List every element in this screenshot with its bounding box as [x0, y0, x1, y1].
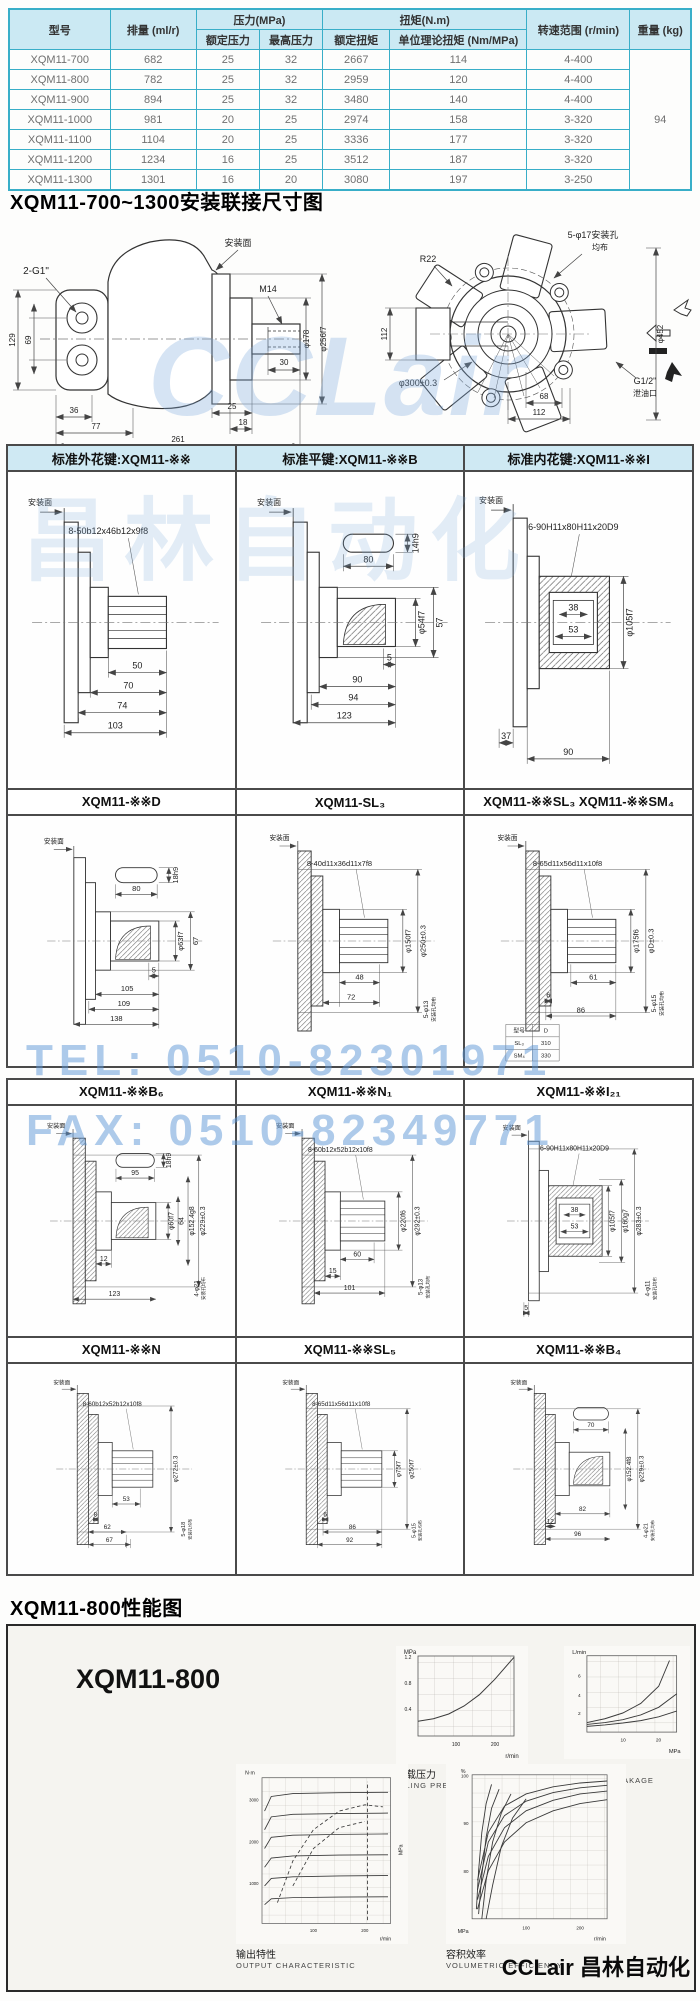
header-variant-n: XQM11-※※N [7, 1337, 236, 1363]
cell-speed-range: 4-400 [527, 90, 630, 110]
header-variant-sl3-sm4: XQM11-※※SL₃ XQM11-※※SM₄ [464, 789, 693, 815]
cell-unit-torque: 114 [390, 50, 527, 70]
cell-model: XQM11-1200 [9, 150, 110, 170]
cell-speed-range: 4-400 [527, 50, 630, 70]
svg-text:62: 62 [104, 1524, 112, 1531]
svg-text:53: 53 [569, 624, 579, 634]
chart-caption-cn: 容积效率 [446, 1946, 646, 1961]
svg-text:φ250±0.3: φ250±0.3 [418, 925, 427, 957]
svg-text:安装面: 安装面 [503, 1124, 521, 1132]
cell-displacement: 894 [110, 90, 196, 110]
svg-text:φ256f7: φ256f7 [319, 326, 328, 352]
drawing-cell-variant-sl3: 4872φ150f7φ250±0.3安装面8-40d11x36d11x7f85-… [236, 815, 465, 1067]
svg-text:112: 112 [533, 408, 546, 417]
chart-caption-en: VOLUMETRIC EFFICIENCY [446, 1961, 646, 1970]
svg-text:310: 310 [541, 1041, 551, 1047]
col-header-rated-pressure: 额定压力 [196, 30, 259, 50]
cell-rated-torque: 3512 [323, 150, 390, 170]
cell-max-pressure: 32 [259, 70, 322, 90]
col-header-rated-torque: 额定扭矩 [323, 30, 390, 50]
svg-text:82: 82 [579, 1506, 587, 1513]
table-row: 5386267φ272±0.3安装面8-60b12x52b12x10f85-φ1… [7, 1363, 693, 1575]
table-row: 8018h95105109138φ63f767安装面 4872φ150f7φ25… [7, 815, 693, 1067]
table-row: XQM11-1200 1234 16 25 3512 187 3-320 [9, 150, 691, 170]
svg-text:12: 12 [100, 1256, 108, 1263]
svg-text:8-50b12x46b12x9f8: 8-50b12x46b12x9f8 [68, 526, 148, 536]
table-header-row: 型号 排量 (ml/r) 压力(MPa) 扭矩(N.m) 转速范围 (r/min… [9, 9, 691, 30]
performance-section-title: XQM11-800性能图 [10, 1592, 183, 1621]
spec-table: 型号 排量 (ml/r) 压力(MPa) 扭矩(N.m) 转速范围 (r/min… [8, 8, 692, 191]
svg-text:r/min: r/min [380, 1937, 392, 1943]
svg-text:12: 12 [547, 1519, 555, 1526]
drawing-cell-inner-spline: 3853φ105f73790安装面6-90H11x80H11x20D9 [464, 471, 693, 789]
header-variant-b4: XQM11-※※B₄ [464, 1337, 693, 1363]
svg-text:18: 18 [239, 418, 248, 427]
svg-text:4: 4 [578, 1693, 581, 1699]
svg-text:φ175f6: φ175f6 [632, 929, 641, 953]
header-variant-sl3: XQM11-SL₃ [236, 789, 465, 815]
svg-text:129: 129 [8, 333, 17, 347]
cell-rated-pressure: 20 [196, 130, 259, 150]
svg-text:5: 5 [387, 653, 392, 663]
svg-text:4-φ21: 4-φ21 [644, 1523, 650, 1538]
svg-text:安装面: 安装面 [257, 497, 281, 507]
svg-text:6: 6 [547, 991, 551, 1000]
svg-text:112: 112 [380, 327, 389, 340]
header-outer-spline: 标准外花键:XQM11-※※ [7, 445, 236, 471]
svg-text:φ150f7: φ150f7 [403, 929, 412, 953]
svg-text:φ452: φ452 [656, 324, 665, 343]
svg-text:6-90H11x80H11x20D9: 6-90H11x80H11x20D9 [528, 522, 618, 532]
svg-text:64: 64 [178, 1217, 185, 1225]
cell-speed-range: 4-400 [527, 70, 630, 90]
svg-text:φ272±0.3: φ272±0.3 [172, 1455, 179, 1482]
cell-rated-pressure: 25 [196, 50, 259, 70]
volumetric-efficiency-plot: %r/minMPa1009080100200 [446, 1764, 626, 1944]
svg-text:36: 36 [70, 406, 79, 415]
svg-text:安装孔均布: 安装孔均布 [186, 1519, 193, 1540]
svg-text:8-65d11x56d11x10f8: 8-65d11x56d11x10f8 [533, 859, 602, 868]
cell-model: XQM11-1100 [9, 130, 110, 150]
svg-text:123: 123 [109, 1291, 121, 1298]
cell-model: XQM11-1000 [9, 110, 110, 130]
svg-text:φ152.4f8: φ152.4f8 [626, 1456, 633, 1482]
svg-text:80: 80 [363, 554, 373, 564]
svg-text:92: 92 [346, 1537, 354, 1544]
svg-text:φ105f7: φ105f7 [625, 608, 635, 636]
col-header-torque-group: 扭矩(N.m) [323, 9, 527, 30]
svg-text:37: 37 [501, 731, 511, 741]
svg-text:20: 20 [656, 1738, 662, 1744]
svg-text:123: 123 [336, 711, 351, 721]
cell-unit-torque: 177 [390, 130, 527, 150]
svg-text:M14: M14 [259, 284, 277, 294]
header-inner-spline: 标准内花键:XQM11-※※I [464, 445, 693, 471]
svg-text:100: 100 [310, 1928, 318, 1933]
svg-text:φ54f7: φ54f7 [416, 611, 426, 634]
svg-text:18h9: 18h9 [166, 1153, 173, 1168]
svg-text:200: 200 [491, 1742, 500, 1748]
svg-text:3000: 3000 [249, 1798, 259, 1803]
svg-text:96: 96 [574, 1531, 582, 1538]
svg-text:10: 10 [621, 1738, 627, 1744]
svg-text:5-φ13: 5-φ13 [417, 1278, 424, 1295]
cell-rated-torque: 2667 [323, 50, 390, 70]
table-row: XQM11-※※N XQM11-※※SL₅ XQM11-※※B₄ [7, 1337, 693, 1363]
cell-speed-range: 3-320 [527, 130, 630, 150]
svg-text:6-90H11x80H11x20D9: 6-90H11x80H11x20D9 [540, 1145, 609, 1152]
cell-rated-torque: 3336 [323, 130, 390, 150]
table-row: XQM11-900 894 25 32 3480 140 4-400 [9, 90, 691, 110]
svg-text:72: 72 [347, 992, 355, 1001]
svg-text:安装面: 安装面 [53, 1378, 70, 1386]
cell-unit-torque: 158 [390, 110, 527, 130]
table-row: 9518h912123φ60f764φ152.4g8φ229±0.3安装面4-φ… [7, 1105, 693, 1337]
svg-text:100: 100 [452, 1742, 461, 1748]
drawing-cell-variant-b6: 9518h912123φ60f764φ152.4g8φ229±0.3安装面4-φ… [7, 1105, 236, 1337]
svg-text:48: 48 [355, 972, 363, 981]
svg-text:安装孔均布: 安装孔均布 [652, 1277, 659, 1300]
svg-text:N·m: N·m [245, 1770, 255, 1776]
shaft-drawing-variant-sl5: 68692φ75f7φ250f7安装面8-65d11x56d11x10f85-φ… [237, 1364, 464, 1574]
shaft-drawing-variant-sl3: 4872φ150f7φ250±0.3安装面8-40d11x36d11x7f85-… [237, 816, 464, 1066]
svg-text:φ220f6: φ220f6 [400, 1210, 407, 1232]
cell-max-pressure: 25 [259, 150, 322, 170]
svg-text:67: 67 [191, 937, 200, 945]
cell-rated-pressure: 20 [196, 110, 259, 130]
svg-text:5-φ15: 5-φ15 [651, 994, 658, 1012]
drawing-cell-outer-spline: 507074103安装面8-50b12x46b12x9f8 [7, 471, 236, 789]
svg-text:95: 95 [131, 1170, 139, 1177]
svg-text:安装面: 安装面 [282, 1378, 299, 1386]
cell-unit-torque: 120 [390, 70, 527, 90]
rotation-direction-arrows [647, 300, 691, 382]
volumetric-efficiency-chart: %r/minMPa1009080100200 容积效率 VOLUMETRIC E… [446, 1764, 646, 1970]
svg-text:138: 138 [110, 1014, 123, 1023]
drawing-cell-variant-b4: 70821296φ152.4f8φ229±0.3安装面4-φ21安装孔均布 [464, 1363, 693, 1575]
svg-text:86: 86 [349, 1524, 357, 1531]
table-row: 标准外花键:XQM11-※※ 标准平键:XQM11-※※B 标准内花键:XQM1… [7, 445, 693, 471]
idling-pressure-plot: MPar/min1.20.80.4100200 [396, 1646, 528, 1764]
cell-model: XQM11-800 [9, 70, 110, 90]
svg-text:2000: 2000 [249, 1840, 259, 1845]
svg-text:109: 109 [118, 999, 131, 1008]
svg-text:安装面: 安装面 [28, 497, 52, 507]
cell-max-pressure: 25 [259, 130, 322, 150]
svg-text:105: 105 [121, 984, 134, 993]
cell-speed-range: 3-320 [527, 150, 630, 170]
motor-side-view-drawing: 2-G1"安装面M1430φ178φ256f71296936772518261 [0, 212, 340, 452]
cell-max-pressure: 32 [259, 90, 322, 110]
svg-text:安装孔均布: 安装孔均布 [659, 991, 666, 1016]
svg-text:61: 61 [589, 972, 597, 981]
svg-text:φ283±0.3: φ283±0.3 [637, 1206, 644, 1235]
header-variant-n1: XQM11-※※N₁ [236, 1079, 465, 1105]
svg-text:330: 330 [541, 1054, 551, 1060]
cell-displacement: 682 [110, 50, 196, 70]
svg-text:68: 68 [540, 392, 549, 401]
cell-max-pressure: 32 [259, 50, 322, 70]
svg-text:φ178: φ178 [302, 329, 311, 348]
svg-text:2: 2 [578, 1711, 581, 1717]
svg-text:38: 38 [569, 602, 579, 612]
svg-text:2-G1": 2-G1" [23, 266, 49, 277]
drawing-cell-variant-n: 5386267φ272±0.3安装面8-60b12x52b12x10f85-φ1… [7, 1363, 236, 1575]
svg-text:φ105f7: φ105f7 [610, 1210, 617, 1232]
header-variant-b6: XQM11-※※B₆ [7, 1079, 236, 1105]
drawing-cell-variant-sl5: 68692φ75f7φ250f7安装面8-65d11x56d11x10f85-φ… [236, 1363, 465, 1575]
shaft-drawing-variant-b6: 9518h912123φ60f764φ152.4g8φ229±0.3安装面4-φ… [8, 1106, 235, 1336]
svg-text:100: 100 [461, 1774, 469, 1779]
svg-text:50: 50 [132, 661, 142, 671]
svg-text:φ250f7: φ250f7 [408, 1459, 415, 1479]
header-variant-sl5: XQM11-※※SL₅ [236, 1337, 465, 1363]
svg-text:77: 77 [92, 422, 101, 431]
svg-text:100: 100 [522, 1926, 530, 1931]
svg-text:53: 53 [571, 1224, 579, 1231]
svg-text:5-φ17安装孔: 5-φ17安装孔 [568, 229, 619, 240]
svg-text:25: 25 [228, 402, 237, 411]
table-row: 507074103安装面8-50b12x46b12x9f8 8014h95909… [7, 471, 693, 789]
col-header-speed-range: 转速范围 (r/min) [527, 9, 630, 50]
svg-text:G1/2": G1/2" [634, 376, 657, 386]
svg-text:80: 80 [463, 1869, 469, 1874]
col-header-weight: 重量 (kg) [630, 9, 691, 50]
svg-text:4-φ11: 4-φ11 [645, 1280, 652, 1296]
shaft-drawing-flat-key: 8014h959094123φ54f757安装面 [237, 472, 464, 788]
table-row: XQM11-※※B₆ XQM11-※※N₁ XQM11-※※I₂₁ [7, 1079, 693, 1105]
internal-leakage-plot: L/minMPa6421020 [564, 1646, 690, 1759]
svg-text:安装面: 安装面 [224, 237, 251, 248]
svg-text:90: 90 [463, 1821, 469, 1826]
cell-unit-torque: 197 [390, 170, 527, 191]
svg-text:8-65d11x56d11x10f8: 8-65d11x56d11x10f8 [312, 1401, 371, 1408]
cell-rated-pressure: 25 [196, 70, 259, 90]
table-row: XQM11-1100 1104 20 25 3336 177 3-320 [9, 130, 691, 150]
col-header-displacement: 排量 (ml/r) [110, 9, 196, 50]
svg-text:74: 74 [117, 701, 127, 711]
output-characteristic-plot: N·mr/minMPa300020001000100200 [236, 1764, 408, 1944]
shaft-drawing-variant-n: 5386267φ272±0.3安装面8-60b12x52b12x10f85-φ1… [8, 1364, 235, 1574]
svg-text:1.2: 1.2 [405, 1655, 412, 1661]
header-flat-key: 标准平键:XQM11-※※B [236, 445, 465, 471]
svg-text:30: 30 [280, 358, 289, 367]
shaft-drawing-inner-spline: 3853φ105f73790安装面6-90H11x80H11x20D9 [465, 472, 692, 788]
svg-text:安装面: 安装面 [511, 1378, 528, 1386]
header-variant-d: XQM11-※※D [7, 789, 236, 815]
svg-text:φ229±0.3: φ229±0.3 [639, 1455, 646, 1482]
svg-text:70: 70 [588, 1422, 596, 1429]
svg-text:安装面: 安装面 [44, 837, 64, 846]
shaft-drawing-variant-n1: 6015101φ220f6φ292±0.3安装面8-60b12x52b12x10… [237, 1106, 464, 1336]
cell-model: XQM11-900 [9, 90, 110, 110]
svg-text:101: 101 [343, 1285, 355, 1292]
performance-panel: XQM11-800 MPar/min1.20.80.4100200 空载压力 I… [6, 1624, 696, 1992]
installation-drawing-strip: 2-G1"安装面M1430φ178φ256f71296936772518261 [0, 212, 700, 442]
cell-displacement: 981 [110, 110, 196, 130]
cell-displacement: 782 [110, 70, 196, 90]
drawing-cell-flat-key: 8014h959094123φ54f757安装面 [236, 471, 465, 789]
cell-rated-torque: 3080 [323, 170, 390, 191]
dimension-table-1: 标准外花键:XQM11-※※ 标准平键:XQM11-※※B 标准内花键:XQM1… [6, 444, 694, 1068]
svg-text:14h9: 14h9 [410, 533, 420, 553]
col-header-max-pressure: 最高压力 [259, 30, 322, 50]
svg-text:安装面: 安装面 [276, 1122, 294, 1130]
svg-text:4-φ21: 4-φ21 [194, 1280, 201, 1297]
cell-rated-torque: 2959 [323, 70, 390, 90]
drawing-cell-variant-i21: 3853φ105f7φ160g7φ283±0.35安装面6-90H11x80H1… [464, 1105, 693, 1337]
svg-text:38: 38 [571, 1207, 579, 1214]
svg-text:L/min: L/min [572, 1650, 586, 1656]
svg-text:安装孔均布: 安装孔均布 [424, 1275, 431, 1298]
svg-text:86: 86 [577, 1006, 585, 1015]
chart-caption-en: OUTPUT CHARACTERISTIC [236, 1961, 421, 1970]
svg-text:8: 8 [94, 1512, 98, 1519]
table-row: XQM11-800 782 25 32 2959 120 4-400 [9, 70, 691, 90]
svg-text:70: 70 [123, 681, 133, 691]
col-header-pressure-group: 压力(MPa) [196, 9, 322, 30]
svg-text:8-40d11x36d11x7f8: 8-40d11x36d11x7f8 [307, 859, 372, 868]
svg-text:φD±0.3: φD±0.3 [647, 929, 656, 954]
svg-text:安装孔均布: 安装孔均布 [416, 1520, 423, 1541]
svg-text:103: 103 [108, 721, 123, 731]
cell-weight: 94 [630, 50, 691, 191]
svg-text:安装面: 安装面 [47, 1122, 65, 1130]
svg-text:1000: 1000 [249, 1881, 259, 1886]
motor-front-view-drawing: 5-φ17安装孔均布R22112φ452φ300±0.368112G1/2"泄油… [330, 212, 700, 452]
shaft-drawing-variant-i21: 3853φ105f7φ160g7φ283±0.35安装面6-90H11x80H1… [465, 1106, 692, 1336]
svg-text:80: 80 [132, 884, 140, 893]
cell-model: XQM11-700 [9, 50, 110, 70]
cell-rated-torque: 3480 [323, 90, 390, 110]
svg-text:φ152.4g8: φ152.4g8 [189, 1206, 196, 1235]
table-row: XQM11-700 682 25 32 2667 114 4-400 94 [9, 50, 691, 70]
svg-text:5-φ15: 5-φ15 [411, 1523, 417, 1538]
svg-text:型号: 型号 [514, 1027, 526, 1035]
svg-text:SL₃: SL₃ [515, 1041, 525, 1047]
svg-text:69: 69 [24, 335, 33, 344]
svg-text:均布: 均布 [592, 242, 608, 252]
svg-text:90: 90 [352, 675, 362, 685]
table-row: XQM11-※※D XQM11-SL₃ XQM11-※※SL₃ XQM11-※※… [7, 789, 693, 815]
svg-text:53: 53 [123, 1496, 131, 1503]
svg-text:200: 200 [361, 1928, 369, 1933]
table-row: XQM11-1000 981 20 25 2974 158 3-320 [9, 110, 691, 130]
cell-rated-pressure: 25 [196, 90, 259, 110]
svg-text:φ75f7: φ75f7 [395, 1460, 402, 1477]
cell-displacement: 1234 [110, 150, 196, 170]
svg-text:MPa: MPa [399, 1844, 405, 1855]
shaft-drawing-variant-d: 8018h95105109138φ63f767安装面 [8, 816, 235, 1066]
svg-text:φ160g7: φ160g7 [623, 1209, 630, 1233]
svg-text:200: 200 [576, 1926, 584, 1931]
svg-text:r/min: r/min [594, 1936, 606, 1942]
svg-text:φ229±0.3: φ229±0.3 [200, 1206, 207, 1235]
svg-text:R22: R22 [420, 254, 437, 264]
header-variant-i21: XQM11-※※I₂₁ [464, 1079, 693, 1105]
svg-text:57: 57 [434, 617, 444, 627]
datasheet-page: 型号 排量 (ml/r) 压力(MPa) 扭矩(N.m) 转速范围 (r/min… [0, 0, 700, 2001]
svg-text:8-60b12x52b12x10f8: 8-60b12x52b12x10f8 [308, 1147, 373, 1154]
svg-text:安装孔均布: 安装孔均布 [200, 1277, 207, 1300]
chart-caption-cn: 输出特性 [236, 1946, 421, 1961]
svg-text:MPa: MPa [458, 1929, 469, 1935]
svg-text:5-φ13: 5-φ13 [422, 1000, 429, 1018]
performance-model-label: XQM11-800 [76, 1664, 220, 1695]
drawing-cell-variant-n1: 6015101φ220f6φ292±0.3安装面8-60b12x52b12x10… [236, 1105, 465, 1337]
svg-text:安装孔均布: 安装孔均布 [430, 997, 437, 1022]
cell-unit-torque: 140 [390, 90, 527, 110]
svg-text:φ63f7: φ63f7 [176, 931, 185, 950]
shaft-drawing-outer-spline: 507074103安装面8-50b12x46b12x9f8 [8, 472, 235, 788]
cell-speed-range: 3-250 [527, 170, 630, 191]
svg-text:18h9: 18h9 [171, 867, 180, 884]
svg-text:6: 6 [323, 1512, 327, 1519]
svg-text:r/min: r/min [505, 1754, 518, 1760]
svg-text:5-φ18: 5-φ18 [181, 1522, 187, 1537]
cell-speed-range: 3-320 [527, 110, 630, 130]
svg-text:6: 6 [578, 1674, 581, 1680]
svg-text:安装面: 安装面 [479, 495, 503, 505]
output-characteristic-chart: N·mr/minMPa300020001000100200 输出特性 OUTPU… [236, 1764, 421, 1970]
svg-text:67: 67 [106, 1537, 114, 1544]
cell-max-pressure: 25 [259, 110, 322, 130]
cell-rated-pressure: 16 [196, 150, 259, 170]
svg-text:安装面: 安装面 [269, 833, 289, 842]
svg-text:MPa: MPa [669, 1749, 682, 1755]
col-header-unit-torque: 单位理论扭矩 (Nm/MPa) [390, 30, 527, 50]
dimension-table-2: XQM11-※※B₆ XQM11-※※N₁ XQM11-※※I₂₁ 9518h9… [6, 1078, 694, 1576]
svg-text:D: D [544, 1029, 548, 1035]
svg-text:0.8: 0.8 [405, 1681, 412, 1687]
svg-text:φ60f7: φ60f7 [168, 1212, 175, 1230]
cell-displacement: 1104 [110, 130, 196, 150]
svg-text:泄油口: 泄油口 [633, 388, 657, 398]
shaft-drawing-variant-b4: 70821296φ152.4f8φ229±0.3安装面4-φ21安装孔均布 [465, 1364, 692, 1574]
svg-text:261: 261 [171, 435, 185, 444]
svg-text:60: 60 [353, 1251, 361, 1258]
drawing-cell-variant-d: 8018h95105109138φ63f767安装面 [7, 815, 236, 1067]
svg-text:5: 5 [152, 966, 156, 975]
svg-text:90: 90 [564, 747, 574, 757]
svg-text:安装孔均布: 安装孔均布 [649, 1520, 656, 1541]
svg-text:0.4: 0.4 [405, 1707, 412, 1713]
svg-text:φ292±0.3: φ292±0.3 [414, 1206, 421, 1235]
svg-text:5: 5 [525, 1305, 529, 1312]
svg-text:SM₄: SM₄ [514, 1054, 526, 1060]
col-header-model: 型号 [9, 9, 110, 50]
svg-text:94: 94 [348, 693, 358, 703]
drawing-cell-variant-sl3-sm4: 61686φ175f6φD±0.3安装面8-65d11x56d11x10f85-… [464, 815, 693, 1067]
cell-rated-torque: 2974 [323, 110, 390, 130]
shaft-drawing-variant-sl3-sm4: 61686φ175f6φD±0.3安装面8-65d11x56d11x10f85-… [465, 816, 692, 1066]
install-section-title: XQM11-700~1300安装联接尺寸图 [10, 186, 323, 215]
cell-unit-torque: 187 [390, 150, 527, 170]
svg-text:安装面: 安装面 [498, 833, 518, 842]
svg-text:15: 15 [329, 1268, 337, 1275]
svg-text:φ300±0.3: φ300±0.3 [399, 378, 437, 388]
svg-text:8-60b12x52b12x10f8: 8-60b12x52b12x10f8 [83, 1401, 143, 1408]
